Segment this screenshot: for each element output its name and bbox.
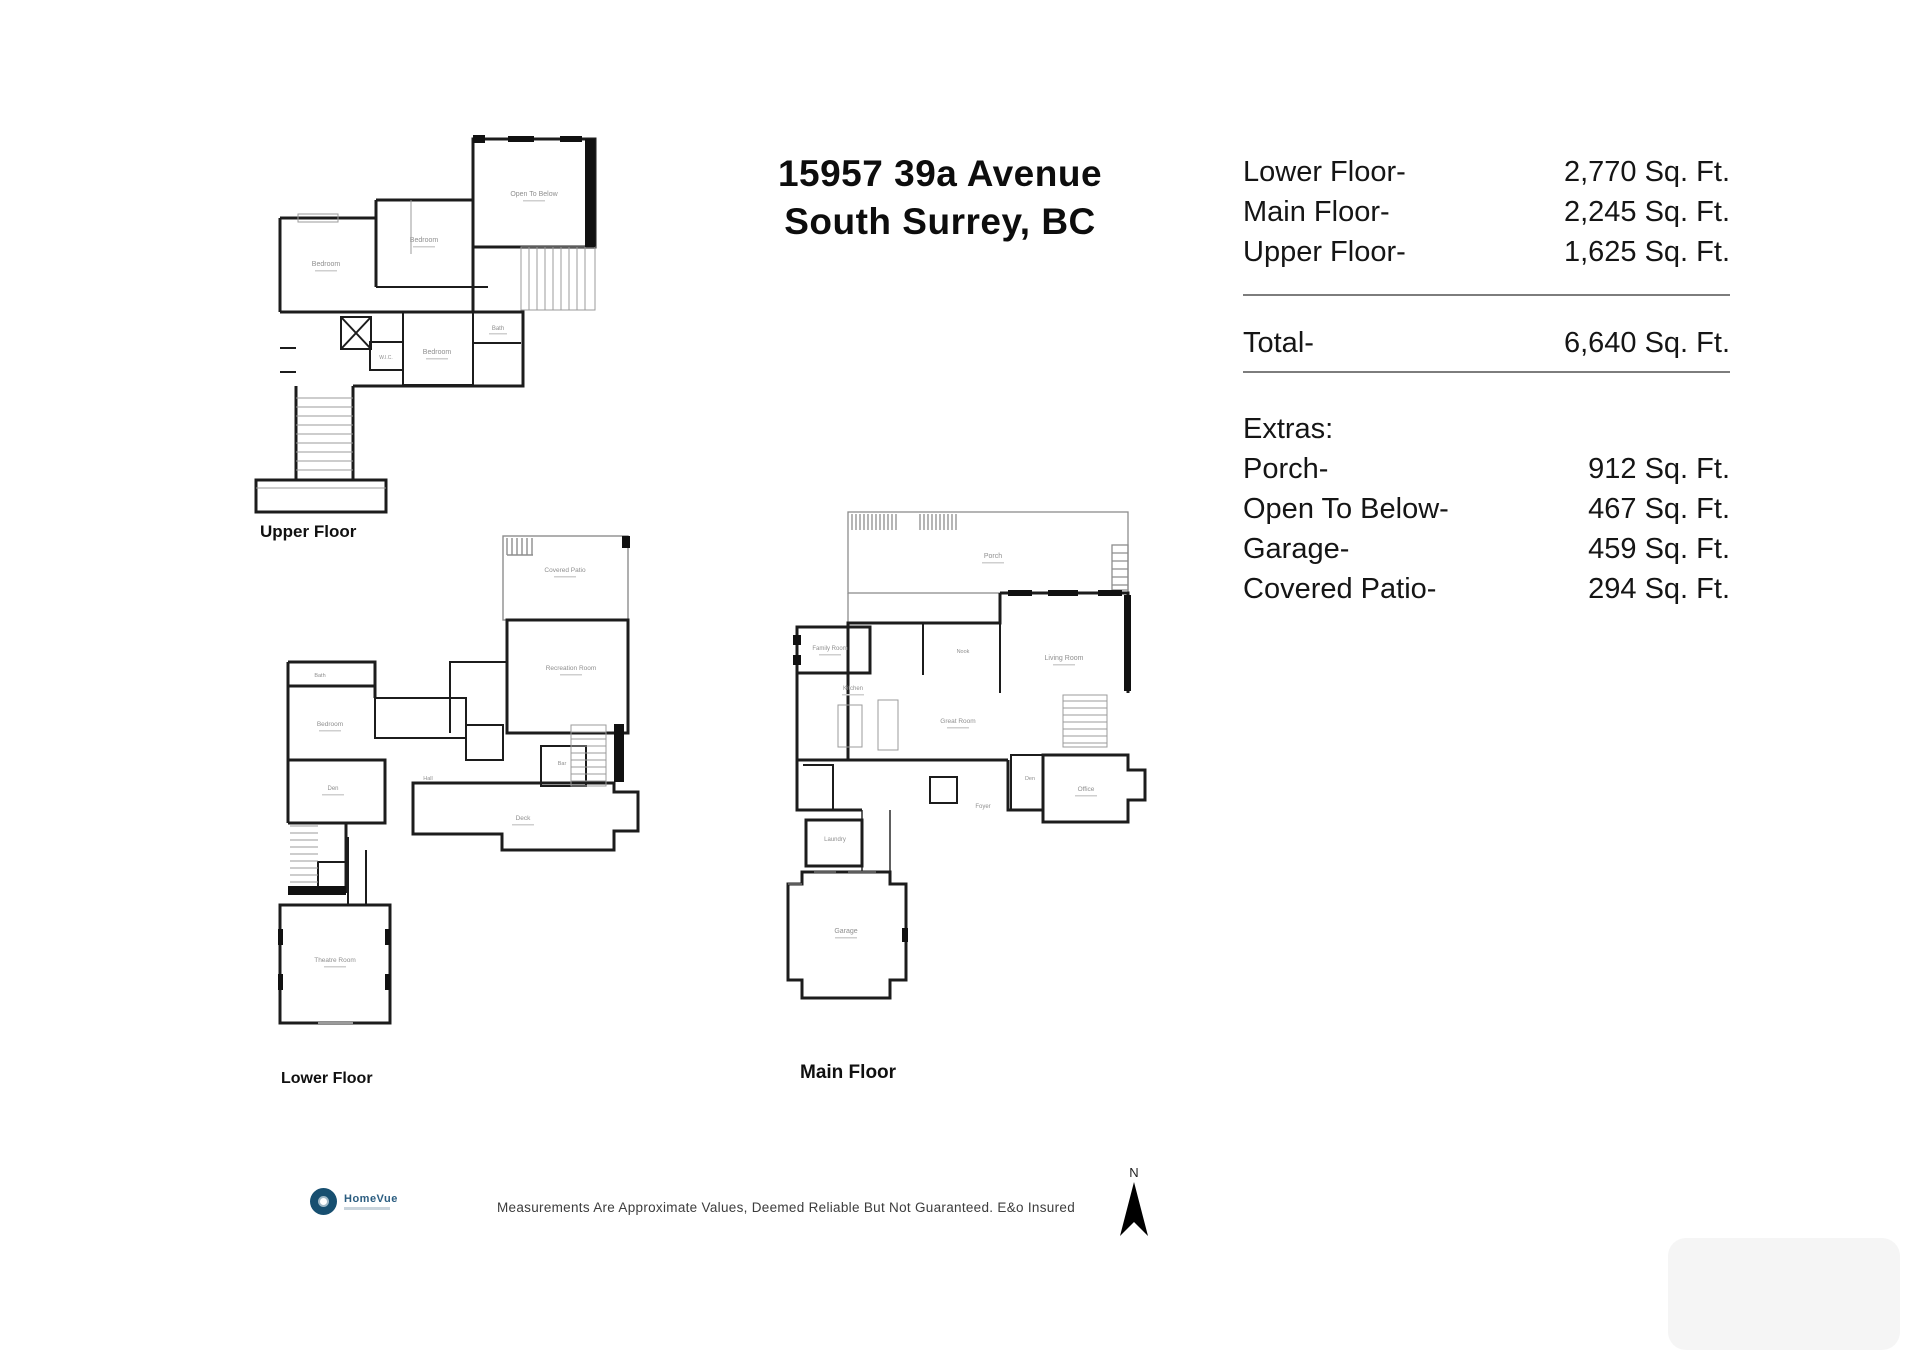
main-wall-fills bbox=[793, 590, 1131, 942]
row-value: 2,245 Sq. Ft. bbox=[1564, 192, 1730, 232]
room-label: Bedroom bbox=[312, 261, 341, 268]
extras-heading: Extras: bbox=[1243, 409, 1730, 449]
row-label: Main Floor- bbox=[1243, 192, 1390, 232]
main-room-labels: Porch Living Room Family Room Kitchen Gr… bbox=[812, 553, 1097, 939]
room-label: Covered Patio bbox=[544, 567, 586, 574]
lower-floor-label: Lower Floor bbox=[281, 1070, 373, 1088]
north-label: N bbox=[1112, 1166, 1156, 1180]
room-label: Hall bbox=[423, 776, 432, 782]
logo-wordmark: HomeVue bbox=[344, 1193, 398, 1205]
address-line-1: 15957 39a Avenue bbox=[690, 150, 1190, 198]
lower-thin-lines bbox=[290, 725, 606, 1023]
lower-room-labels: Covered Patio Recreation Room Bedroom Ba… bbox=[314, 567, 596, 968]
disclaimer-text: Measurements Are Approximate Values, Dee… bbox=[497, 1200, 1075, 1215]
table-row: Lower Floor- 2,770 Sq. Ft. bbox=[1243, 152, 1730, 192]
room-label: Den bbox=[1025, 776, 1035, 782]
row-value: 2,770 Sq. Ft. bbox=[1564, 152, 1730, 192]
row-label: Open To Below- bbox=[1243, 489, 1449, 529]
main-porch-lines bbox=[848, 512, 1128, 623]
upper-floor-plan: Open To Below Bedroom Bedroom Bedroom Ba… bbox=[208, 114, 600, 528]
total-label: Total- bbox=[1243, 323, 1314, 363]
room-label: Den bbox=[327, 786, 338, 792]
row-value: 467 Sq. Ft. bbox=[1588, 489, 1730, 529]
lower-floor-plan: Covered Patio Recreation Room Bedroom Ba… bbox=[278, 534, 664, 1086]
room-label: Recreation Room bbox=[546, 665, 597, 672]
row-label: Lower Floor- bbox=[1243, 152, 1406, 192]
floorplan-sheet: 15957 39a Avenue South Surrey, BC Lower … bbox=[0, 0, 1920, 1357]
room-label: Bedroom bbox=[410, 237, 439, 244]
room-label: Deck bbox=[516, 815, 532, 822]
watermark bbox=[1668, 1238, 1900, 1350]
row-value: 1,625 Sq. Ft. bbox=[1564, 232, 1730, 272]
logo-subtext-bar bbox=[344, 1207, 390, 1210]
lower-patio-lines bbox=[503, 536, 628, 620]
table-row: Upper Floor- 1,625 Sq. Ft. bbox=[1243, 232, 1730, 272]
row-label: Garage- bbox=[1243, 529, 1349, 569]
room-label: Family Room bbox=[812, 646, 847, 652]
table-row: Covered Patio- 294 Sq. Ft. bbox=[1243, 569, 1730, 609]
room-label: Theatre Room bbox=[314, 957, 356, 964]
lower-wall-fills bbox=[278, 536, 630, 990]
room-label: Bath bbox=[314, 673, 325, 679]
table-row: Garage- 459 Sq. Ft. bbox=[1243, 529, 1730, 569]
divider bbox=[1243, 371, 1730, 373]
room-label: Bar bbox=[558, 761, 567, 767]
room-label: Bedroom bbox=[423, 349, 452, 356]
address-line-2: South Surrey, BC bbox=[690, 198, 1190, 246]
room-label: Porch bbox=[984, 553, 1002, 560]
total-row: Total- 6,640 Sq. Ft. bbox=[1243, 323, 1730, 363]
room-label: Garage bbox=[834, 928, 857, 935]
row-label: Porch- bbox=[1243, 449, 1328, 489]
north-arrow-icon bbox=[1112, 1180, 1156, 1238]
row-value: 294 Sq. Ft. bbox=[1588, 569, 1730, 609]
homevue-logo: HomeVue bbox=[310, 1188, 398, 1215]
row-label: Upper Floor- bbox=[1243, 232, 1406, 272]
upper-interior-walls bbox=[280, 287, 521, 385]
main-floor-label: Main Floor bbox=[800, 1062, 896, 1084]
room-label: Open To Below bbox=[510, 191, 558, 198]
room-label: Office bbox=[1078, 786, 1095, 793]
total-value: 6,640 Sq. Ft. bbox=[1564, 323, 1730, 363]
room-label: Living Room bbox=[1045, 655, 1084, 662]
room-label: Kitchen bbox=[843, 686, 863, 692]
table-row: Main Floor- 2,245 Sq. Ft. bbox=[1243, 192, 1730, 232]
row-value: 912 Sq. Ft. bbox=[1588, 449, 1730, 489]
room-label: W.I.C. bbox=[379, 355, 393, 361]
room-label: Laundry bbox=[824, 837, 846, 843]
main-floor-plan: Porch Living Room Family Room Kitchen Gr… bbox=[778, 500, 1200, 1080]
room-label: Nook bbox=[957, 649, 970, 655]
address-title: 15957 39a Avenue South Surrey, BC bbox=[690, 150, 1190, 246]
homevue-logo-icon bbox=[310, 1188, 337, 1215]
north-indicator: N bbox=[1112, 1166, 1156, 1243]
row-value: 459 Sq. Ft. bbox=[1588, 529, 1730, 569]
row-label: Covered Patio- bbox=[1243, 569, 1436, 609]
logo-text-wrap: HomeVue bbox=[344, 1193, 398, 1210]
room-label: Bath bbox=[492, 326, 504, 332]
table-row: Open To Below- 467 Sq. Ft. bbox=[1243, 489, 1730, 529]
area-table: Lower Floor- 2,770 Sq. Ft. Main Floor- 2… bbox=[1243, 152, 1730, 609]
room-label: Great Room bbox=[940, 718, 975, 725]
room-label: Foyer bbox=[975, 804, 990, 810]
divider bbox=[1243, 294, 1730, 296]
table-row: Porch- 912 Sq. Ft. bbox=[1243, 449, 1730, 489]
room-label: Bedroom bbox=[317, 721, 343, 728]
